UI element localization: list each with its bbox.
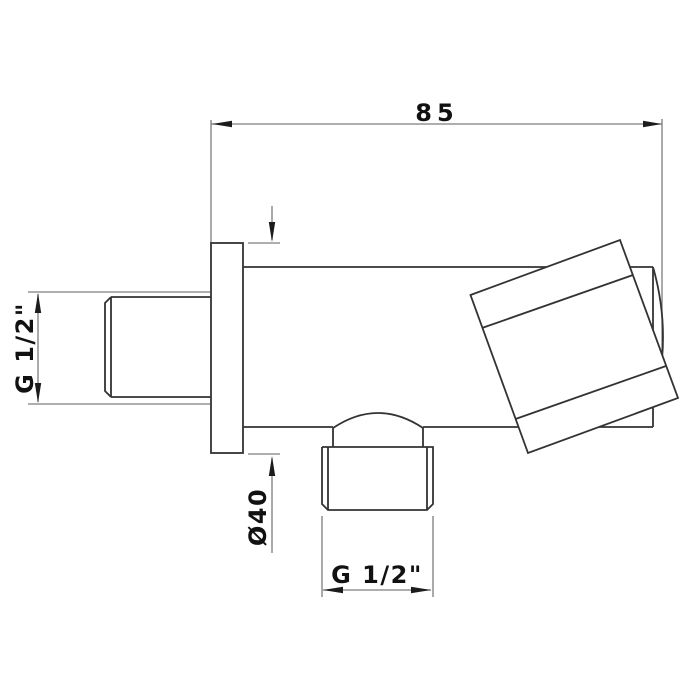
outlet-port	[322, 413, 433, 510]
outlet-thread-body	[322, 447, 433, 510]
fitting-outline	[105, 240, 678, 510]
arrowhead-down-icon	[269, 222, 275, 242]
dimension-inlet-thread	[28, 292, 210, 404]
outlet-thread-label: G 1/2"	[331, 561, 423, 589]
flange-diameter-label: Ø40	[244, 488, 272, 546]
inlet-thread-label: G 1/2"	[11, 302, 39, 394]
outlet-fitting-dimension-drawing: 85 G 1/2" Ø40 G 1/2"	[0, 0, 700, 700]
top-width-label: 85	[415, 99, 458, 127]
wall-flange	[211, 243, 243, 453]
arrowhead-left-icon	[212, 121, 232, 127]
arrowhead-up-icon	[269, 456, 275, 476]
dimension-labels: 85 G 1/2" Ø40 G 1/2"	[11, 99, 459, 589]
outlet-thread-inner-lines	[328, 447, 427, 510]
technical-drawing-canvas: 85 G 1/2" Ø40 G 1/2"	[0, 0, 700, 700]
outlet-neck	[333, 428, 423, 447]
outlet-dome	[333, 413, 423, 428]
arrowhead-right-icon	[643, 121, 662, 127]
inlet-thread	[105, 297, 211, 397]
handle-body	[471, 240, 679, 453]
handle	[471, 240, 679, 453]
